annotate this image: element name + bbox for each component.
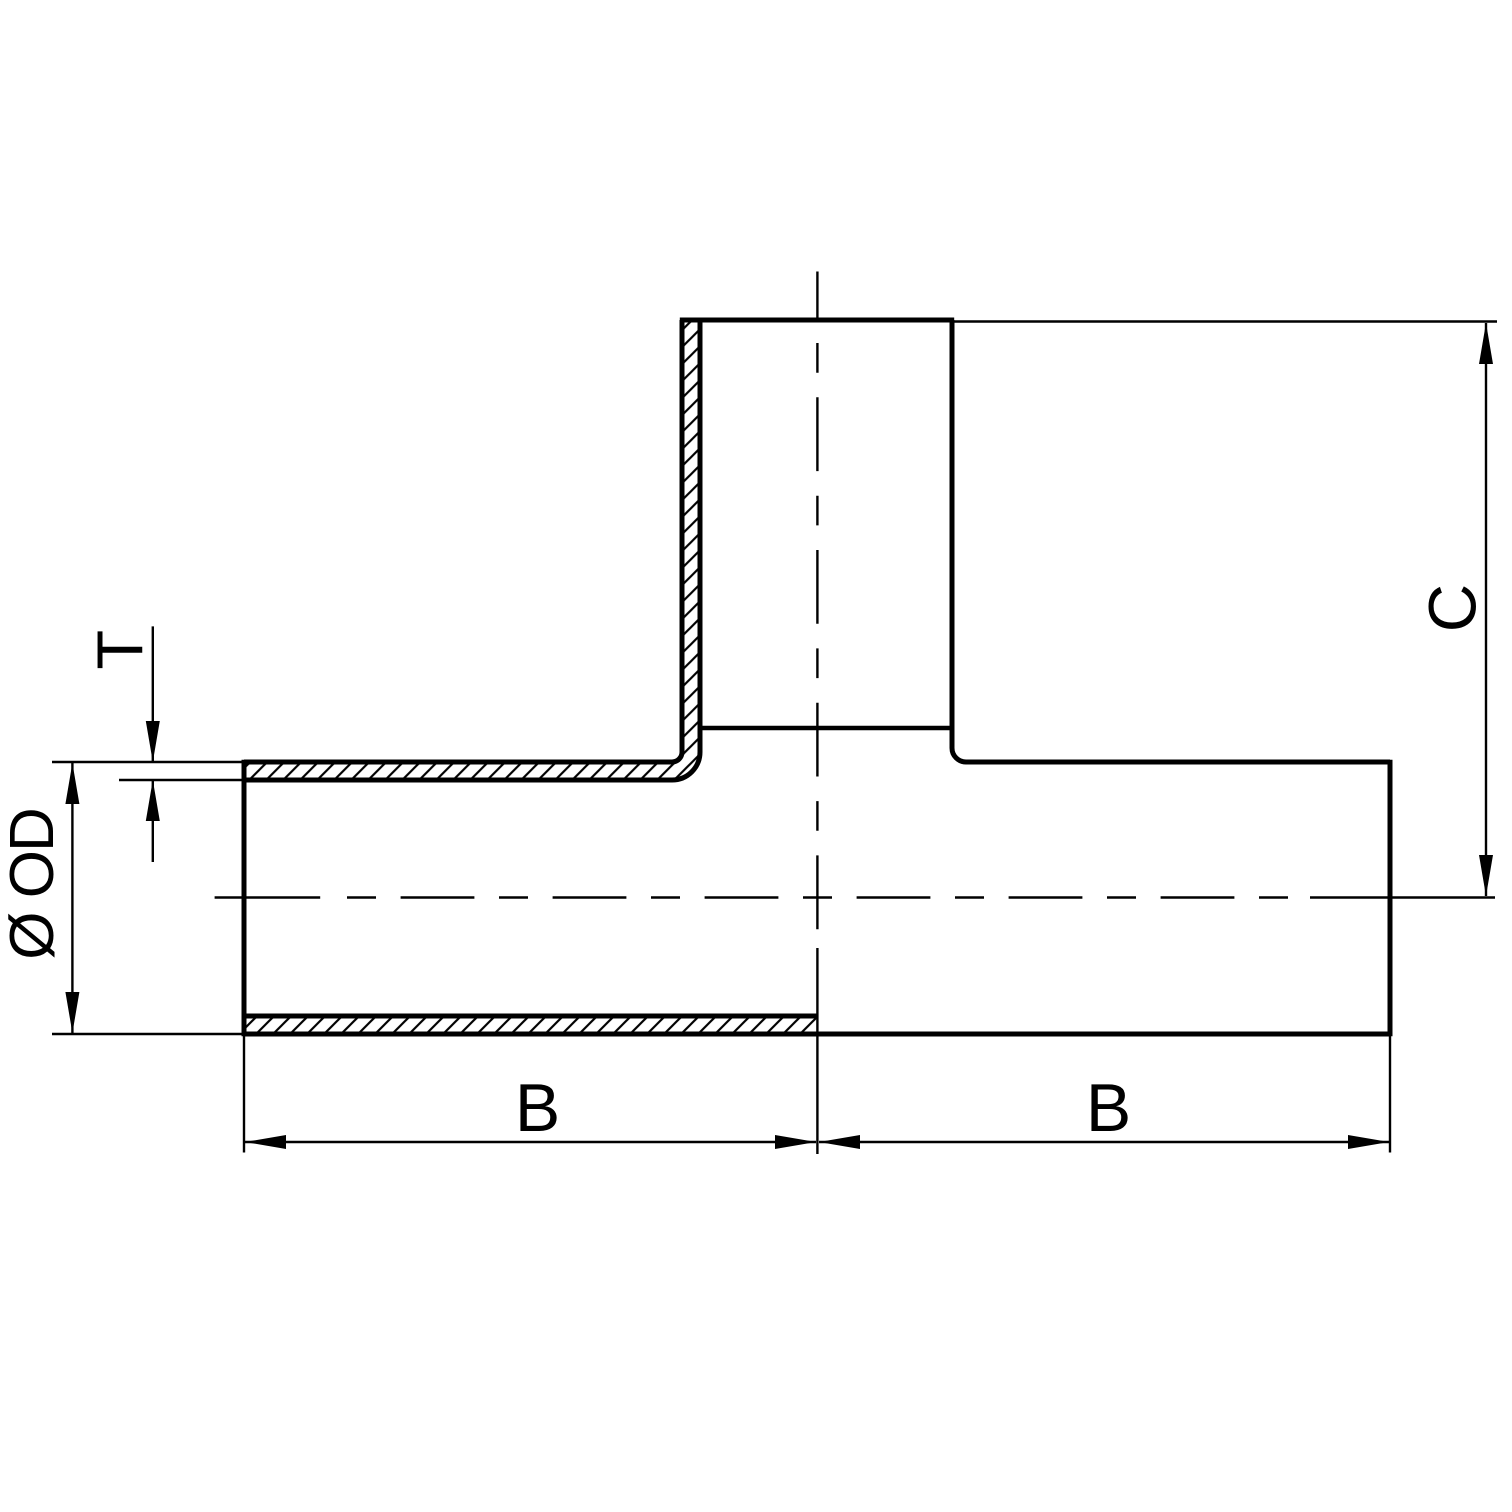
svg-text:B: B: [515, 1070, 560, 1146]
svg-text:Ø OD: Ø OD: [0, 809, 67, 959]
svg-text:B: B: [1086, 1070, 1131, 1146]
svg-text:C: C: [1416, 584, 1491, 632]
svg-text:T: T: [83, 630, 156, 670]
